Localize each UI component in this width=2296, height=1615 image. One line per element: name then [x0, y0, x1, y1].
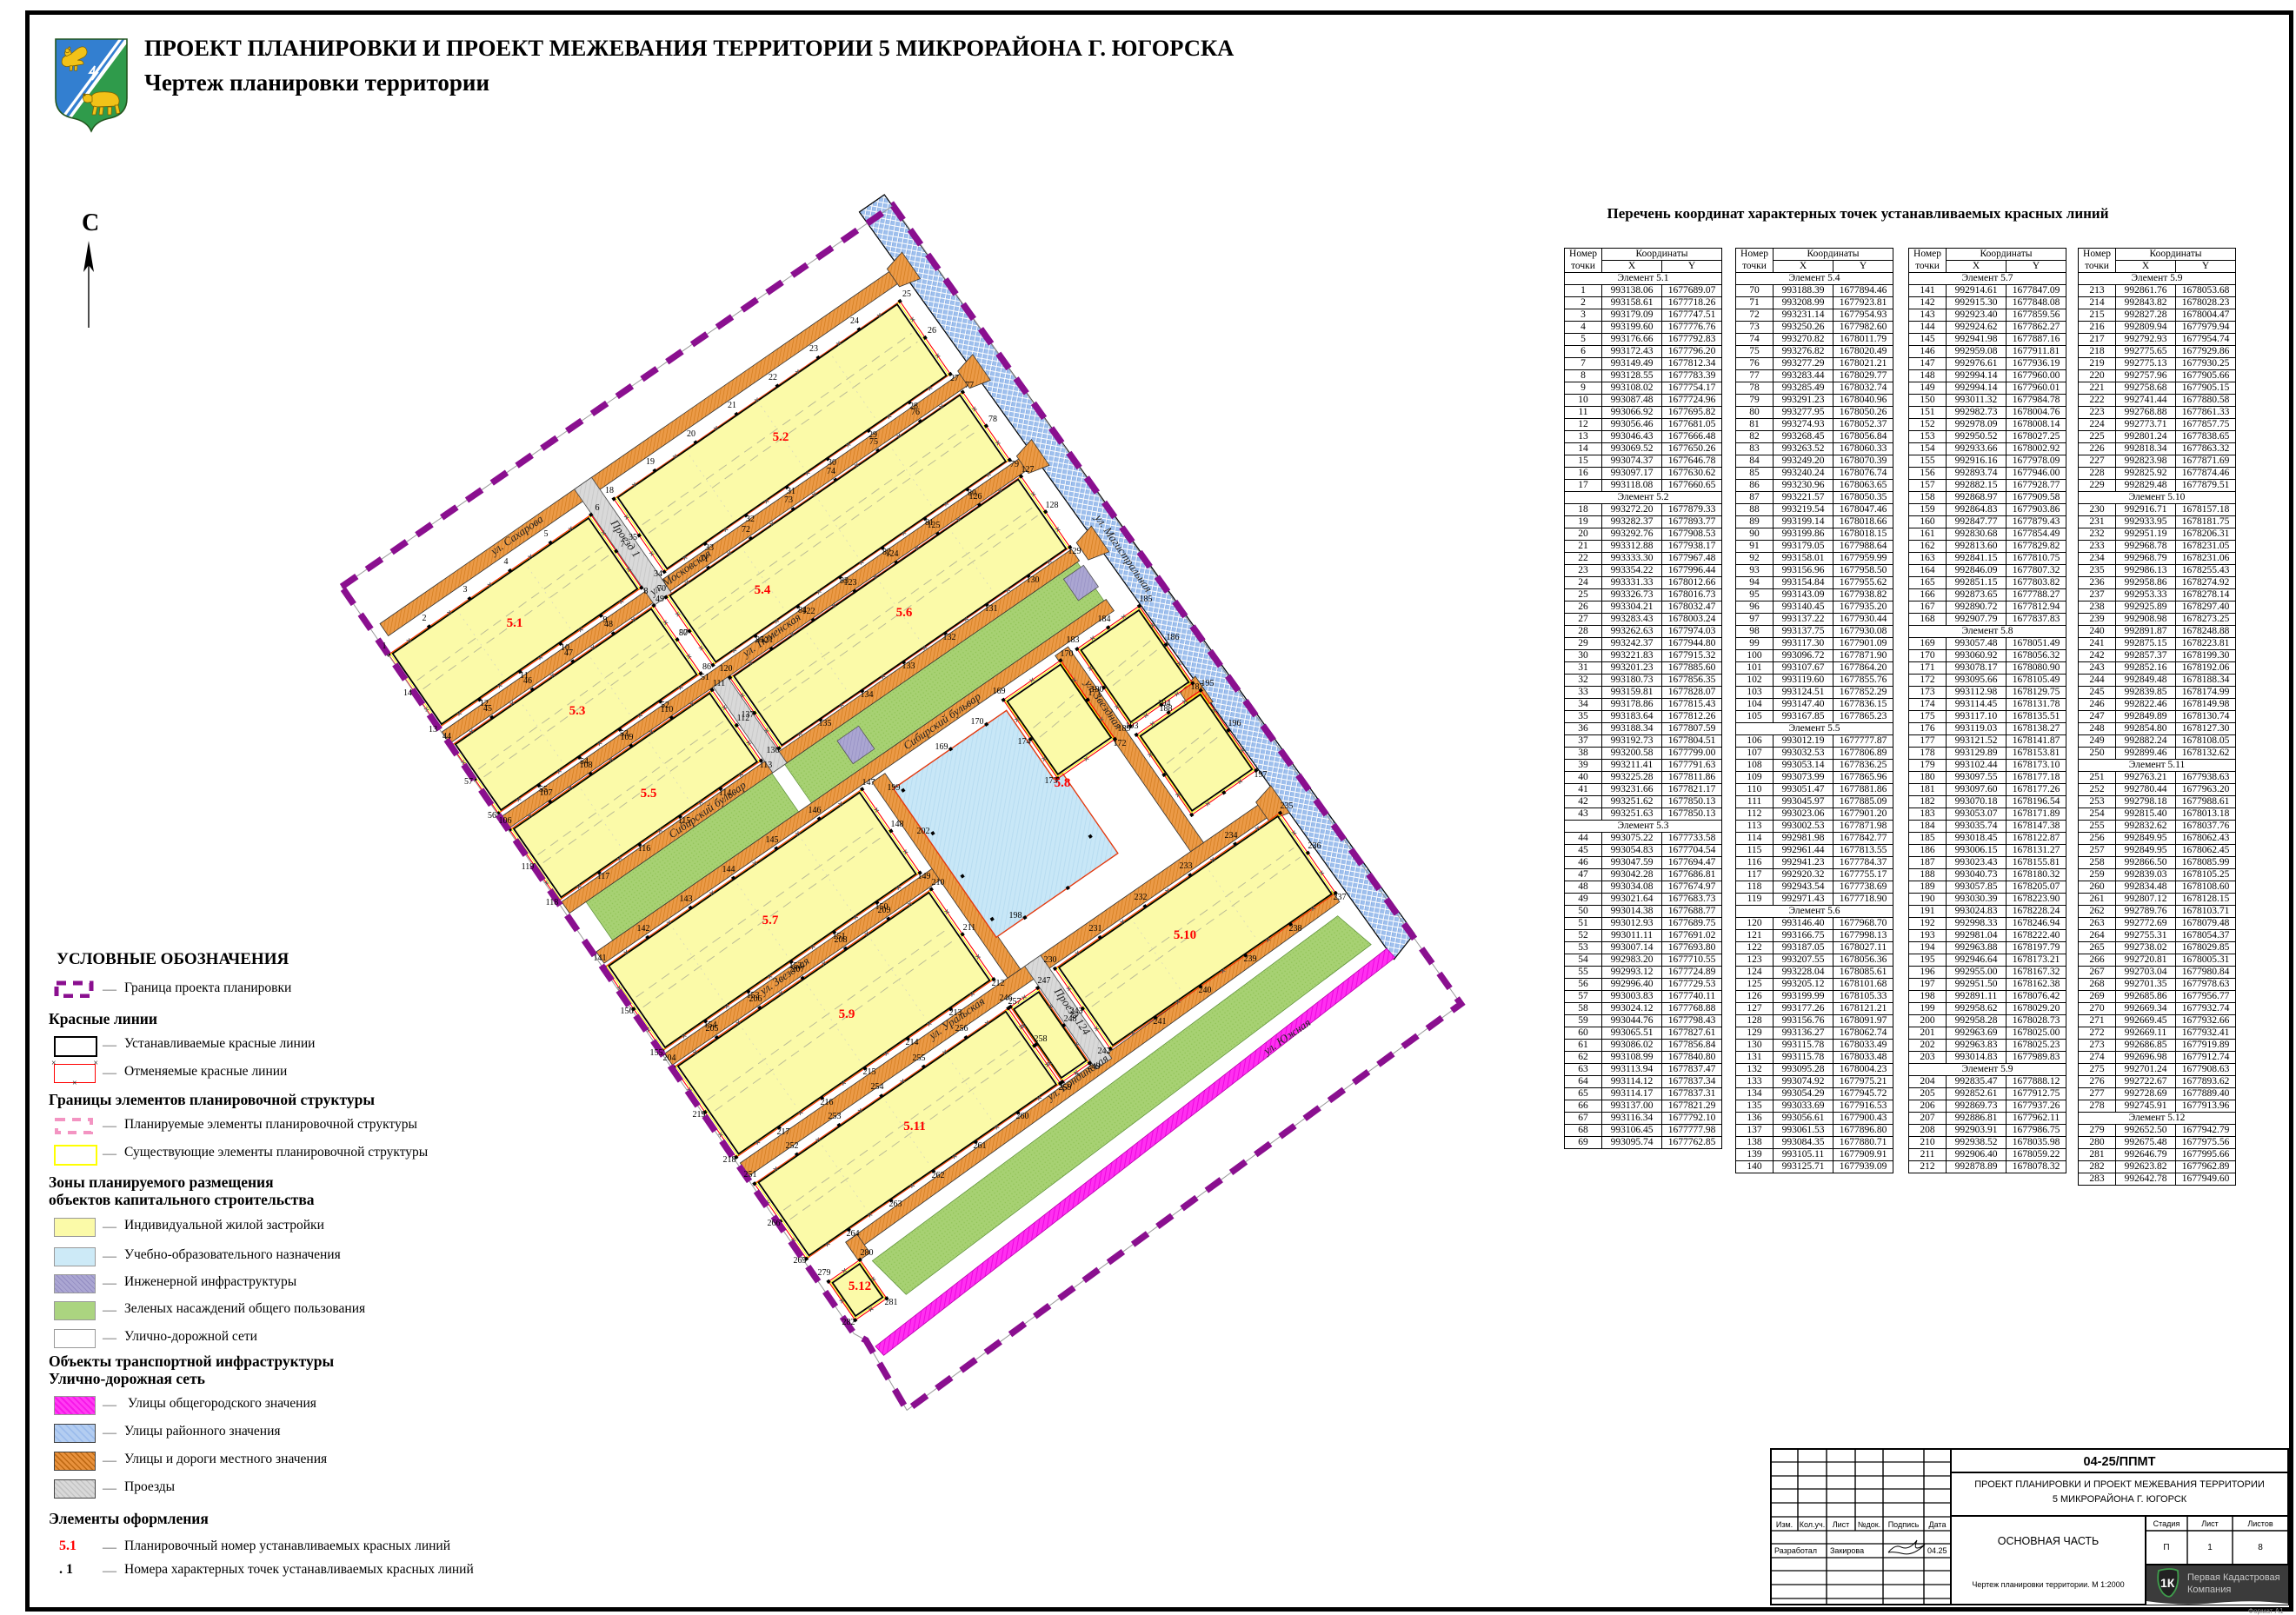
svg-text:170: 170	[1061, 649, 1074, 659]
svg-text:143: 143	[680, 894, 693, 904]
svg-text:Стадия: Стадия	[2153, 1519, 2180, 1528]
svg-text:П: П	[2163, 1543, 2169, 1552]
svg-text:211: 211	[963, 923, 976, 933]
svg-text:206: 206	[749, 994, 762, 1004]
svg-text:111: 111	[713, 679, 725, 688]
svg-text:48: 48	[604, 620, 613, 629]
svg-text:202: 202	[917, 827, 930, 836]
svg-text:216: 216	[821, 1098, 834, 1107]
svg-text:1: 1	[2207, 1543, 2213, 1552]
svg-text:142: 142	[637, 924, 650, 934]
svg-text:ОСНОВНАЯ ЧАСТЬ: ОСНОВНАЯ ЧАСТЬ	[1998, 1535, 2100, 1547]
svg-text:127: 127	[1022, 465, 1035, 475]
svg-text:109: 109	[621, 733, 634, 742]
svg-text:118: 118	[546, 898, 559, 907]
svg-text:237: 237	[1334, 893, 1347, 902]
svg-text:194: 194	[1158, 699, 1171, 708]
svg-text:14: 14	[403, 688, 412, 698]
svg-text:86: 86	[702, 662, 711, 672]
svg-text:128: 128	[1046, 501, 1059, 510]
svg-text:116: 116	[638, 844, 651, 854]
svg-text:208: 208	[835, 935, 848, 945]
svg-text:217: 217	[777, 1127, 790, 1137]
svg-text:282: 282	[842, 1318, 855, 1327]
svg-text:Чертеж планировки территории.: Чертеж планировки территории. М 1:2000	[1972, 1580, 2124, 1589]
svg-text:234: 234	[1225, 831, 1238, 841]
svg-text:262: 262	[932, 1171, 945, 1180]
svg-text:209: 209	[878, 906, 891, 915]
svg-text:197: 197	[1254, 770, 1268, 780]
svg-text:Кол.уч.: Кол.уч.	[1800, 1520, 1826, 1529]
svg-text:5.10: 5.10	[1174, 928, 1196, 942]
svg-text:131: 131	[985, 604, 998, 614]
svg-text:196: 196	[1228, 719, 1241, 728]
svg-text:3: 3	[463, 585, 468, 595]
svg-text:261: 261	[974, 1141, 987, 1151]
svg-text:70: 70	[657, 584, 666, 594]
svg-text:126: 126	[969, 492, 982, 502]
svg-text:169: 169	[935, 742, 948, 752]
svg-text:214: 214	[906, 1038, 919, 1047]
svg-text:124: 124	[886, 549, 899, 559]
svg-text:106: 106	[499, 816, 512, 826]
svg-text:193: 193	[1126, 721, 1139, 731]
svg-text:230: 230	[1044, 955, 1057, 965]
svg-text:117: 117	[597, 872, 610, 881]
svg-text:129: 129	[1068, 547, 1081, 556]
svg-text:56: 56	[488, 811, 496, 821]
svg-text:195: 195	[1201, 679, 1215, 688]
svg-text:212: 212	[992, 979, 1005, 988]
svg-text:145: 145	[766, 835, 779, 845]
svg-text:73: 73	[784, 495, 793, 505]
svg-text:247: 247	[1038, 976, 1051, 986]
svg-text:156: 156	[621, 1007, 634, 1016]
svg-text:265: 265	[794, 1256, 807, 1266]
svg-text:239: 239	[1244, 954, 1257, 964]
svg-text:169: 169	[993, 687, 1006, 696]
svg-text:185: 185	[1140, 595, 1153, 604]
svg-text:184: 184	[1098, 615, 1111, 624]
svg-text:149: 149	[918, 872, 931, 881]
svg-text:04-25/ППМТ: 04-25/ППМТ	[2084, 1455, 2156, 1469]
svg-text:135: 135	[819, 719, 832, 728]
svg-text:Закирова: Закирова	[1830, 1546, 1864, 1555]
svg-text:133: 133	[902, 661, 915, 671]
svg-text:240: 240	[1199, 986, 1212, 995]
svg-text:147: 147	[862, 778, 875, 788]
svg-text:279: 279	[818, 1268, 831, 1278]
svg-text:205: 205	[706, 1024, 719, 1033]
svg-text:183: 183	[1067, 635, 1080, 645]
svg-text:ул. Сахарова: ул. Сахарова	[487, 512, 546, 559]
svg-text:259: 259	[1059, 1083, 1072, 1093]
svg-text:5.5: 5.5	[641, 787, 657, 801]
svg-text:2: 2	[423, 614, 427, 623]
svg-text:Подпись: Подпись	[1888, 1520, 1920, 1529]
svg-text:264: 264	[847, 1229, 860, 1239]
svg-text:108: 108	[580, 761, 593, 770]
svg-text:Листов: Листов	[2247, 1519, 2273, 1528]
svg-text:215: 215	[863, 1067, 876, 1077]
svg-text:141: 141	[594, 954, 607, 963]
svg-text:144: 144	[722, 865, 735, 874]
svg-text:04.25: 04.25	[1927, 1546, 1947, 1555]
svg-text:Лист: Лист	[1833, 1520, 1850, 1529]
svg-text:23: 23	[809, 344, 818, 354]
svg-text:5: 5	[544, 529, 549, 539]
svg-text:5.3: 5.3	[569, 704, 586, 718]
svg-text:253: 253	[829, 1112, 842, 1121]
svg-text:57: 57	[464, 777, 473, 787]
svg-text:280: 280	[861, 1248, 874, 1258]
svg-text:78: 78	[988, 415, 997, 424]
svg-text:46: 46	[523, 676, 532, 686]
svg-text:113: 113	[760, 761, 773, 770]
svg-text:236: 236	[1308, 841, 1321, 851]
svg-text:122: 122	[802, 607, 815, 616]
svg-text:107: 107	[540, 788, 553, 798]
svg-text:47: 47	[564, 648, 573, 658]
svg-text:219: 219	[693, 1110, 706, 1120]
svg-text:121: 121	[761, 635, 774, 645]
svg-text:137: 137	[742, 710, 755, 720]
svg-text:21: 21	[728, 401, 736, 410]
svg-text:281: 281	[885, 1298, 898, 1307]
svg-text:241: 241	[1154, 1017, 1167, 1027]
svg-text:204: 204	[663, 1053, 676, 1063]
svg-text:249: 249	[1088, 1062, 1101, 1072]
svg-text:260: 260	[1016, 1112, 1029, 1121]
svg-text:Компания: Компания	[2187, 1585, 2231, 1595]
svg-text:8: 8	[2258, 1543, 2263, 1552]
svg-text:254: 254	[871, 1082, 884, 1092]
svg-text:248: 248	[1064, 1014, 1077, 1024]
svg-text:5.1: 5.1	[507, 616, 523, 630]
svg-text:115: 115	[678, 816, 691, 826]
svg-text:207: 207	[792, 965, 805, 974]
svg-text:172: 172	[1114, 739, 1127, 748]
svg-text:173: 173	[1045, 776, 1058, 786]
svg-text:5.2: 5.2	[773, 430, 789, 444]
svg-text:186: 186	[1167, 633, 1180, 642]
svg-text:257: 257	[1008, 997, 1022, 1007]
svg-text:148: 148	[891, 820, 904, 829]
svg-text:256: 256	[955, 1024, 968, 1033]
svg-text:252: 252	[786, 1141, 799, 1151]
svg-text:258: 258	[1035, 1034, 1048, 1044]
svg-text:218: 218	[723, 1155, 736, 1165]
svg-text:266: 266	[768, 1219, 781, 1228]
svg-text:7: 7	[621, 540, 625, 549]
svg-text:190: 190	[1091, 685, 1104, 695]
svg-text:130: 130	[1027, 575, 1040, 585]
svg-text:120: 120	[720, 664, 733, 674]
svg-text:77: 77	[965, 381, 974, 390]
svg-text:18: 18	[605, 486, 614, 495]
svg-text:Лист: Лист	[2201, 1519, 2219, 1528]
svg-text:44: 44	[443, 732, 451, 741]
svg-text:5.9: 5.9	[839, 1007, 855, 1021]
svg-text:13: 13	[429, 725, 437, 734]
svg-text:20: 20	[687, 429, 695, 439]
svg-text:33: 33	[705, 543, 714, 553]
svg-text:Разработал: Разработал	[1774, 1546, 1817, 1555]
svg-text:Дата: Дата	[1929, 1520, 1947, 1529]
svg-text:233: 233	[1180, 861, 1193, 871]
svg-text:34: 34	[654, 569, 662, 579]
svg-text:Первая Кадастровая: Первая Кадастровая	[2187, 1572, 2280, 1583]
svg-text:74: 74	[827, 467, 835, 476]
svg-text:110: 110	[661, 705, 674, 714]
svg-text:132: 132	[943, 633, 956, 642]
svg-text:35: 35	[629, 533, 637, 542]
svg-text:72: 72	[742, 525, 750, 535]
svg-text:87: 87	[679, 628, 688, 638]
svg-text:25: 25	[902, 289, 911, 299]
svg-text:119: 119	[522, 862, 535, 872]
svg-text:136: 136	[767, 746, 780, 755]
svg-text:134: 134	[861, 690, 874, 700]
svg-text:76: 76	[911, 408, 920, 417]
svg-text:255: 255	[913, 1053, 926, 1063]
svg-text:231: 231	[1089, 924, 1102, 934]
svg-text:22: 22	[769, 373, 777, 382]
svg-text:5.6: 5.6	[896, 606, 913, 620]
svg-text:24: 24	[850, 316, 859, 326]
svg-text:238: 238	[1289, 924, 1302, 934]
svg-text:5.11: 5.11	[903, 1120, 925, 1133]
svg-text:71: 71	[700, 555, 709, 564]
svg-text:1: 1	[383, 641, 387, 651]
svg-text:251: 251	[744, 1170, 757, 1180]
svg-text:5.12: 5.12	[849, 1279, 871, 1293]
svg-text:75: 75	[869, 437, 878, 447]
svg-text:51: 51	[701, 673, 709, 682]
svg-text:45: 45	[483, 704, 492, 714]
svg-text:49: 49	[656, 595, 664, 604]
svg-text:198: 198	[1009, 911, 1022, 920]
svg-text:№док.: №док.	[1858, 1520, 1880, 1529]
svg-text:263: 263	[889, 1200, 902, 1209]
svg-text:79: 79	[1010, 460, 1019, 469]
svg-text:27: 27	[950, 374, 959, 383]
svg-text:170: 170	[971, 717, 984, 727]
svg-text:26: 26	[928, 326, 936, 336]
svg-text:8: 8	[644, 587, 649, 596]
svg-text:5.4: 5.4	[755, 583, 771, 597]
svg-text:6: 6	[596, 503, 600, 513]
svg-text:4: 4	[504, 557, 509, 567]
svg-text:232: 232	[1135, 893, 1148, 902]
svg-text:32: 32	[746, 515, 755, 524]
svg-text:235: 235	[1281, 801, 1294, 811]
svg-text:1К: 1К	[2160, 1576, 2175, 1590]
svg-text:210: 210	[932, 878, 945, 887]
svg-text:174: 174	[1018, 737, 1031, 747]
svg-text:ПРОЕКТ ПЛАНИРОВКИ И ПРОЕКТ МЕЖ: ПРОЕКТ ПЛАНИРОВКИ И ПРОЕКТ МЕЖЕВАНИЯ ТЕР…	[1974, 1479, 2265, 1490]
svg-text:146: 146	[809, 806, 822, 815]
svg-text:199: 199	[888, 783, 901, 793]
svg-text:213: 213	[949, 1008, 962, 1018]
svg-text:19: 19	[646, 457, 655, 467]
svg-text:242: 242	[1098, 1047, 1111, 1056]
svg-text:5 МИКРОРАЙОНА Г. ЮГОРСК: 5 МИКРОРАЙОНА Г. ЮГОРСК	[2053, 1493, 2187, 1505]
svg-text:5.7: 5.7	[762, 914, 779, 927]
svg-text:114: 114	[719, 788, 732, 798]
svg-text:123: 123	[844, 578, 857, 588]
svg-text:Изм.: Изм.	[1776, 1520, 1793, 1529]
svg-text:125: 125	[928, 521, 941, 530]
